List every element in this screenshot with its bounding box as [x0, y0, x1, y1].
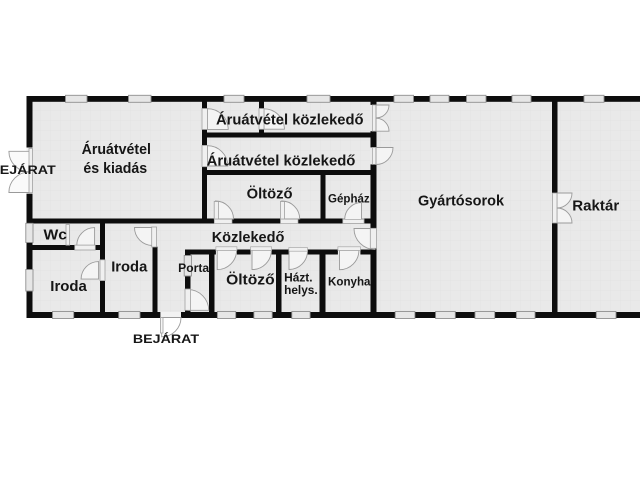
svg-text:Raktár: Raktár: [572, 198, 619, 215]
svg-text:Áruátvétel közlekedő: Áruátvétel közlekedő: [207, 153, 356, 170]
svg-text:Gyártósorok: Gyártósorok: [418, 193, 505, 210]
svg-text:Konyha: Konyha: [328, 275, 371, 289]
svg-text:Porta: Porta: [178, 261, 209, 275]
svg-text:Áruátvétel: Áruátvétel: [82, 141, 151, 158]
svg-text:Áruátvétel közlekedő: Áruátvétel közlekedő: [216, 112, 364, 129]
svg-text:BEJÁRAT: BEJÁRAT: [133, 331, 200, 346]
svg-text:Wc: Wc: [44, 226, 68, 243]
svg-text:Öltöző: Öltöző: [247, 185, 293, 202]
svg-text:Gépház: Gépház: [328, 191, 370, 205]
svg-text:és kiadás: és kiadás: [83, 160, 147, 177]
svg-text:Iroda: Iroda: [50, 278, 87, 295]
svg-text:Iroda: Iroda: [111, 258, 148, 275]
svg-text:helys.: helys.: [284, 283, 318, 297]
svg-text:Közlekedő: Közlekedő: [212, 229, 285, 246]
svg-text:Öltöző: Öltöző: [226, 272, 275, 289]
svg-text:BEJÁRAT: BEJÁRAT: [0, 162, 56, 177]
